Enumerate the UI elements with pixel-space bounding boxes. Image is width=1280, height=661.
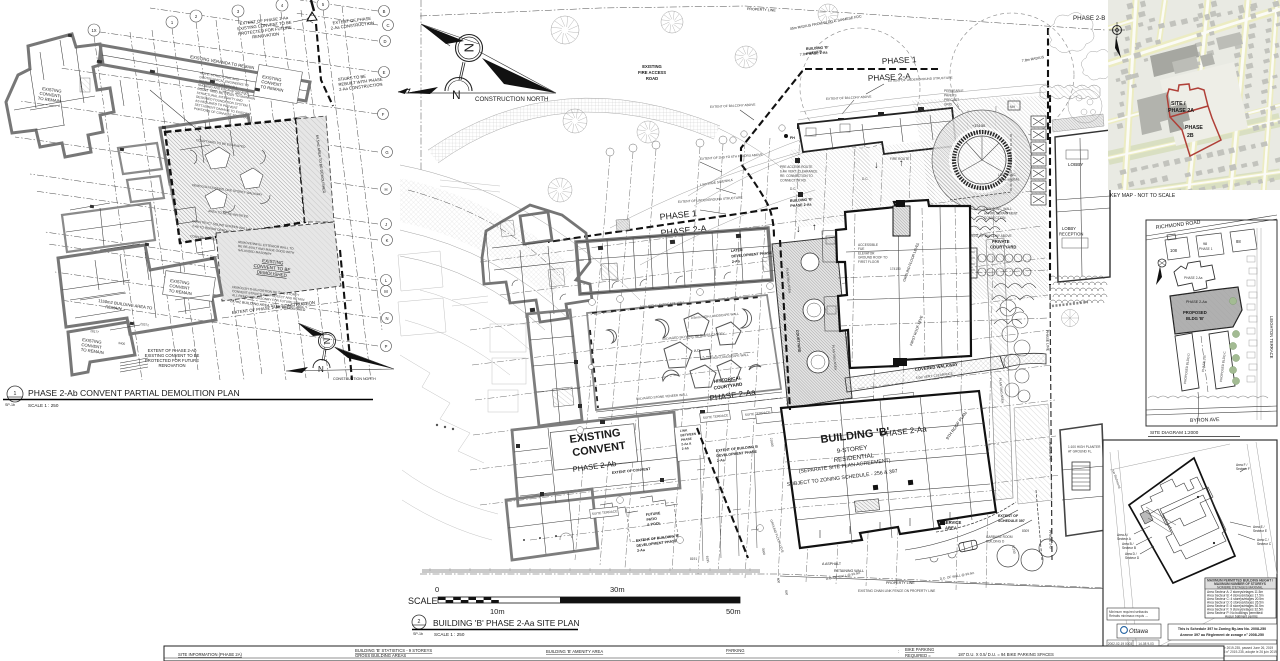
svg-text:FH: FH bbox=[790, 136, 795, 140]
svg-text:30m: 30m bbox=[610, 585, 625, 594]
svg-text:↓: ↓ bbox=[796, 224, 801, 235]
svg-text:8191: 8191 bbox=[690, 557, 697, 561]
svg-text:N: N bbox=[318, 365, 324, 374]
svg-text:Secteur E: Secteur E bbox=[1253, 529, 1267, 533]
svg-text:SP-1b: SP-1b bbox=[5, 403, 15, 407]
svg-text:Secteur A: Secteur A bbox=[1117, 537, 1132, 541]
svg-text:CONSTRUCTION NORTH: CONSTRUCTION NORTH bbox=[475, 96, 548, 103]
svg-text:Ottawa: Ottawa bbox=[1129, 629, 1149, 635]
svg-text:SCALE 1 : 250: SCALE 1 : 250 bbox=[434, 632, 465, 637]
svg-text:F: F bbox=[382, 112, 385, 117]
svg-text:108: 108 bbox=[1170, 248, 1178, 253]
svg-text:PHASE 2-Ab CONVENT PARTIAL DE: PHASE 2-Ab CONVENT PARTIAL DEMOLITION PL… bbox=[28, 388, 240, 398]
svg-text:N: N bbox=[452, 88, 461, 102]
svg-text:EXISTING CHAIN LINK FENCE ON P: EXISTING CHAIN LINK FENCE ON PROPERTY LI… bbox=[858, 589, 935, 593]
svg-text:J: J bbox=[385, 222, 387, 227]
svg-text:0: 0 bbox=[435, 585, 439, 594]
svg-text:98: 98 bbox=[1203, 242, 1207, 246]
svg-text:Secteur D: Secteur D bbox=[1125, 556, 1140, 560]
svg-text:50m: 50m bbox=[726, 607, 741, 616]
svg-text:K: K bbox=[386, 238, 389, 243]
svg-text:N: N bbox=[462, 43, 477, 52]
svg-text:C: C bbox=[386, 23, 389, 28]
svg-text:GROSS BUILDING AREAS: GROSS BUILDING AREAS bbox=[355, 653, 406, 658]
svg-text:B: B bbox=[383, 9, 386, 14]
svg-text:H: H bbox=[384, 187, 387, 192]
svg-text:88: 88 bbox=[1236, 239, 1241, 244]
svg-text:BUILDING 'B' AMENITY AREA: BUILDING 'B' AMENITY AREA bbox=[546, 649, 603, 654]
svg-text:8309: 8309 bbox=[1022, 529, 1029, 533]
svg-text:174150: 174150 bbox=[890, 267, 901, 271]
svg-text:M: M bbox=[384, 289, 388, 294]
svg-text:187 D.U. X 0.5/ D.U. = 94 BIKE: 187 D.U. X 0.5/ D.U. = 94 BIKE PARKING S… bbox=[958, 652, 1054, 657]
svg-text:A ASPHALT: A ASPHALT bbox=[822, 562, 842, 566]
svg-text:Aucun batiment permis: Aucun batiment permis bbox=[1225, 615, 1258, 619]
svg-text:PHASE 2-Aa: PHASE 2-Aa bbox=[1184, 276, 1203, 280]
svg-text:LEIGHTON TERRACE: LEIGHTON TERRACE bbox=[1269, 316, 1274, 359]
svg-text:2B: 2B bbox=[1187, 133, 1194, 139]
svg-text:10m: 10m bbox=[490, 607, 505, 616]
svg-text:D.C.: D.C. bbox=[790, 187, 796, 191]
svg-text:EXISTINGCONVENTTO REMAIN: EXISTINGCONVENTTO REMAIN bbox=[168, 278, 193, 296]
svg-text:REQUIRED =: REQUIRED = bbox=[905, 653, 931, 658]
svg-text:CONSTRUCTION NORTH: CONSTRUCTION NORTH bbox=[333, 377, 376, 381]
svg-text:PHASE 2A: PHASE 2A bbox=[1168, 108, 1194, 114]
svg-text:PHASE: PHASE bbox=[1185, 125, 1203, 131]
svg-text:E: E bbox=[383, 70, 386, 75]
svg-text:KEY MAP - NOT TO SCALE: KEY MAP - NOT TO SCALE bbox=[1110, 193, 1176, 199]
svg-text:G: G bbox=[385, 150, 388, 155]
svg-text:2002-02-19 0003: 2002-02-19 0003 bbox=[1108, 642, 1133, 646]
svg-text:P: P bbox=[385, 344, 388, 349]
svg-text:EXISTINGCONVENTTO REMAIN: EXISTINGCONVENTTO REMAIN bbox=[80, 337, 105, 355]
svg-text:NOMBRE D'ETAGES MAXIMAL: NOMBRE D'ETAGES MAXIMAL bbox=[1217, 586, 1263, 590]
svg-text:BUILDING 'B'PHASE 2-Aa: BUILDING 'B'PHASE 2-Aa bbox=[806, 45, 829, 56]
svg-text:PHASE LINE: PHASE LINE bbox=[1045, 330, 1050, 352]
svg-text:14-08 9-03: 14-08 9-03 bbox=[1138, 642, 1154, 646]
svg-text:Annexe 397 au Règlement de zon: Annexe 397 au Règlement de zonage n° 200… bbox=[1180, 633, 1264, 637]
svg-text:Secteur F: Secteur F bbox=[1236, 467, 1250, 471]
svg-text:PROPERTY LINE: PROPERTY LINE bbox=[886, 581, 915, 585]
svg-text:A.D.: A.D. bbox=[694, 348, 701, 353]
svg-text:1X: 1X bbox=[91, 28, 96, 33]
svg-text:←: ← bbox=[876, 137, 884, 146]
svg-text:BYRON AVE: BYRON AVE bbox=[1190, 417, 1220, 424]
svg-text:BIKE PARKING: BIKE PARKING bbox=[905, 647, 934, 652]
svg-text:EXISTINGCONVENTTO REMAIN: EXISTINGCONVENTTO REMAIN bbox=[37, 86, 62, 104]
svg-text:SITE INFORMATION (PHASE 2A): SITE INFORMATION (PHASE 2A) bbox=[178, 652, 243, 657]
svg-text:PHASE 2-Aa: PHASE 2-Aa bbox=[1186, 300, 1207, 304]
svg-text:BLDG 'B': BLDG 'B' bbox=[1186, 316, 1204, 321]
svg-text:PHASE 2-B: PHASE 2-B bbox=[1073, 15, 1105, 22]
svg-text:PHASE 1: PHASE 1 bbox=[1199, 247, 1213, 251]
svg-text:PARKING: PARKING bbox=[726, 648, 745, 653]
svg-text:PHASE 1: PHASE 1 bbox=[882, 55, 917, 66]
svg-text:This is Schedule 397 to Zoning: This is Schedule 397 to Zoning By-law No… bbox=[1178, 627, 1266, 631]
svg-text:SP-1b: SP-1b bbox=[413, 632, 423, 636]
svg-text:↑: ↑ bbox=[812, 222, 817, 233]
svg-text:LOBBY: LOBBY bbox=[1068, 162, 1083, 167]
svg-text:D: D bbox=[383, 39, 386, 44]
svg-text:Secteur B: Secteur B bbox=[1122, 546, 1136, 550]
svg-text:Secteur C: Secteur C bbox=[1257, 542, 1272, 546]
svg-text::: : bbox=[898, 649, 899, 654]
svg-text:BUILDING 'B' PHASE 2-Aa SITE: BUILDING 'B' PHASE 2-Aa SITE PLAN bbox=[433, 618, 580, 628]
svg-text:PROPOSED: PROPOSED bbox=[1183, 310, 1207, 315]
svg-text:N: N bbox=[385, 316, 388, 321]
svg-text:2: 2 bbox=[418, 619, 421, 625]
svg-text:Retraits minimaux requis ↔: Retraits minimaux requis ↔ bbox=[1109, 614, 1148, 618]
svg-text:1: 1 bbox=[14, 391, 17, 397]
svg-text:SITE DIAGRAM 1:2000: SITE DIAGRAM 1:2000 bbox=[1150, 430, 1199, 435]
svg-text:SCALE 1 : 250: SCALE 1 : 250 bbox=[28, 403, 59, 408]
svg-text:SCALE: SCALE bbox=[408, 596, 438, 606]
svg-text:N: N bbox=[322, 338, 332, 344]
svg-text:SITE /: SITE / bbox=[1171, 101, 1186, 107]
